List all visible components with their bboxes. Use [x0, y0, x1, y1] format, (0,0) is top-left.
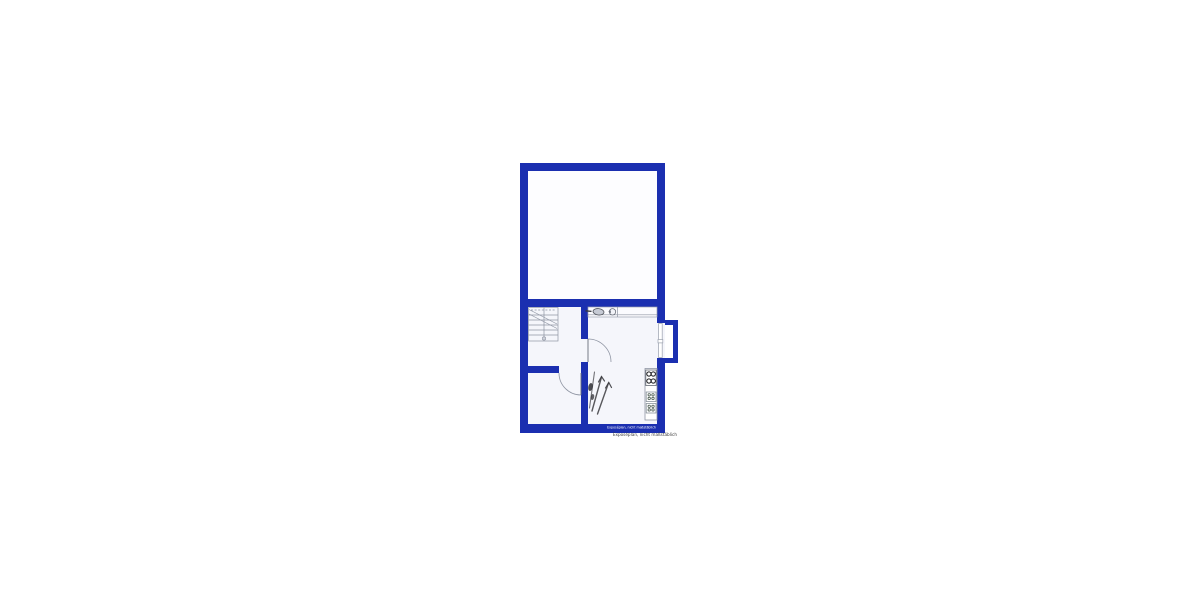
- disclaimer-on-wall: Exposéplan, nicht maßstäblich: [607, 426, 656, 430]
- window-handle-icon: [658, 340, 663, 343]
- light-shaft: [664, 320, 678, 363]
- kitchen-counter: [586, 307, 658, 317]
- lower-section: [528, 307, 657, 424]
- window: [657, 323, 665, 358]
- disclaimer-below-plan: Exposéplan, nicht maßstäblich: [613, 432, 678, 437]
- faucet-icon: [586, 311, 592, 312]
- stove-icon: [646, 370, 656, 386]
- upper-room: [528, 171, 657, 299]
- hall-kitchen-wall-lower: [581, 362, 588, 424]
- dryer-icon: [646, 404, 656, 414]
- page-canvas: Exposéplan, nicht maßstäblich Exposéplan…: [0, 0, 1200, 600]
- appliance-column: [645, 369, 657, 421]
- washer-icon: [646, 392, 656, 402]
- floor-plan: Exposéplan, nicht maßstäblich Exposéplan…: [0, 0, 1200, 600]
- hall-kitchen-wall-upper: [581, 307, 588, 339]
- storage-room-wall: [528, 366, 559, 373]
